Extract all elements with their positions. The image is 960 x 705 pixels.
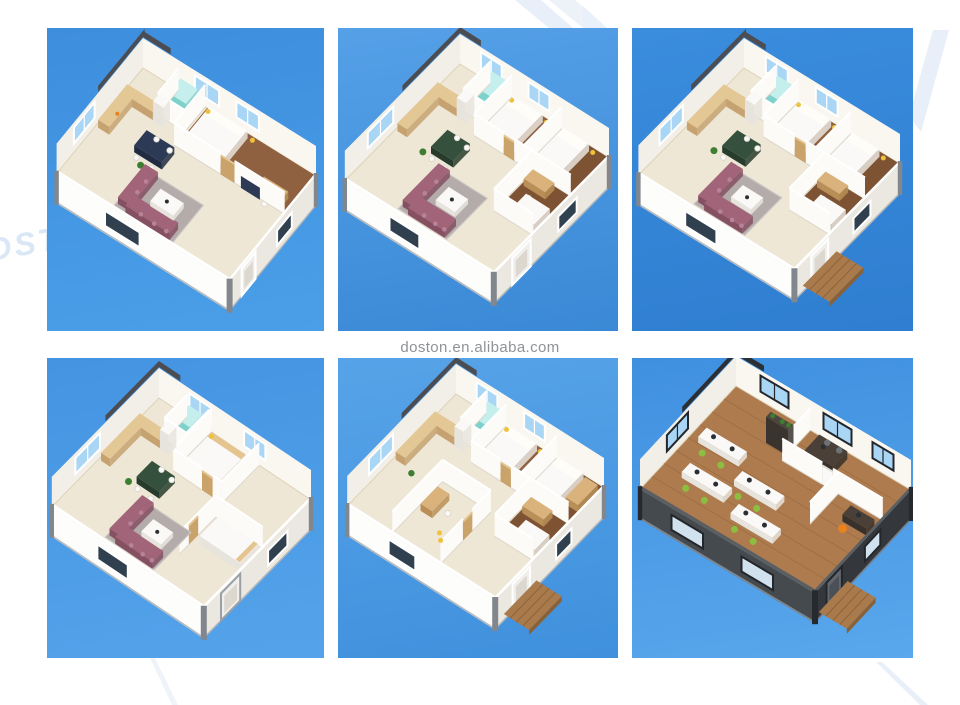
floor-plan-thumbnail-2 [338,28,618,331]
floor-plan-thumbnail-4 [47,358,324,658]
promo-collage: DST doston.en.alibaba.com [0,0,960,705]
floor-plan-thumbnail-1 [47,28,324,331]
floor-plan-thumbnail-5 [338,358,618,658]
floor-plan-render [47,358,324,658]
floor-plan-render [47,28,324,331]
floor-plan-render [338,358,618,658]
watermark-text: doston.en.alibaba.com [0,338,960,358]
floor-plan-thumbnail-6 [632,358,913,658]
floor-plan-render [632,358,913,658]
floor-plan-thumbnail-3 [632,28,913,331]
floor-plan-render [632,28,913,331]
floor-plan-render [338,28,618,331]
